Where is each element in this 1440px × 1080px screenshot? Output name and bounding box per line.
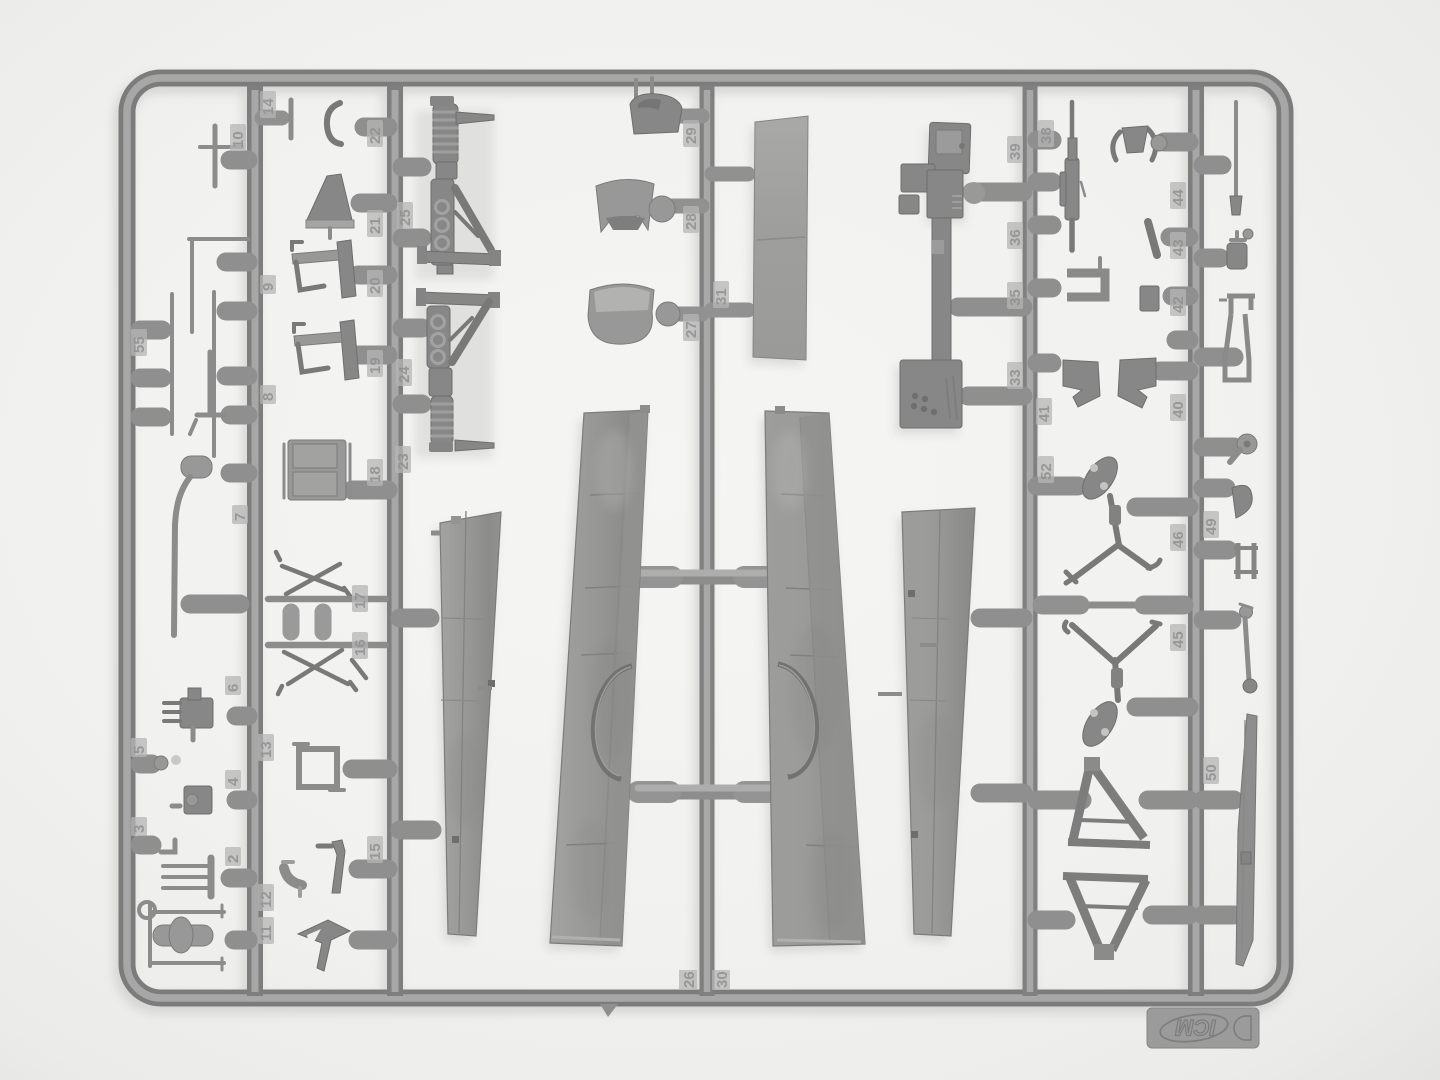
svg-text:6: 6 — [225, 684, 242, 692]
svg-text:46: 46 — [1170, 531, 1187, 548]
svg-text:49: 49 — [1203, 518, 1220, 535]
svg-text:19: 19 — [367, 357, 384, 374]
svg-text:40: 40 — [1170, 401, 1187, 418]
svg-text:30: 30 — [714, 971, 731, 988]
svg-text:39: 39 — [1007, 143, 1024, 160]
svg-text:21: 21 — [367, 217, 384, 234]
svg-text:3: 3 — [131, 825, 148, 833]
svg-text:31: 31 — [713, 288, 730, 305]
svg-text:12: 12 — [258, 891, 275, 908]
svg-text:27: 27 — [683, 321, 700, 338]
svg-text:15: 15 — [367, 843, 384, 860]
svg-text:4: 4 — [225, 777, 242, 786]
svg-text:14: 14 — [260, 98, 277, 115]
svg-text:28: 28 — [683, 213, 700, 230]
svg-text:41: 41 — [1036, 405, 1053, 422]
svg-text:35: 35 — [1007, 289, 1024, 306]
svg-text:7: 7 — [232, 513, 249, 521]
svg-text:29: 29 — [683, 127, 700, 144]
svg-text:ICM: ICM — [1175, 1015, 1216, 1040]
svg-text:43: 43 — [1170, 239, 1187, 256]
svg-text:55: 55 — [131, 336, 148, 353]
svg-text:17: 17 — [352, 592, 369, 609]
svg-text:44: 44 — [1170, 189, 1187, 206]
svg-text:26: 26 — [681, 971, 698, 988]
svg-text:23: 23 — [395, 453, 412, 470]
svg-text:11: 11 — [258, 925, 275, 941]
svg-text:10: 10 — [230, 131, 247, 148]
svg-text:50: 50 — [1203, 764, 1220, 781]
svg-text:38: 38 — [1038, 127, 1055, 144]
svg-text:45: 45 — [1170, 631, 1187, 648]
svg-text:22: 22 — [367, 127, 384, 144]
svg-text:24: 24 — [396, 366, 413, 383]
svg-text:2: 2 — [225, 855, 242, 863]
svg-text:8: 8 — [260, 393, 277, 401]
svg-text:18: 18 — [367, 466, 384, 483]
svg-text:33: 33 — [1007, 369, 1024, 386]
svg-text:5: 5 — [131, 746, 148, 754]
svg-text:9: 9 — [260, 283, 277, 291]
svg-text:52: 52 — [1038, 463, 1055, 480]
svg-text:42: 42 — [1170, 296, 1187, 313]
svg-text:20: 20 — [367, 277, 384, 294]
svg-text:13: 13 — [258, 741, 275, 758]
svg-text:36: 36 — [1007, 229, 1024, 246]
svg-text:16: 16 — [352, 639, 369, 656]
svg-text:25: 25 — [397, 209, 414, 226]
